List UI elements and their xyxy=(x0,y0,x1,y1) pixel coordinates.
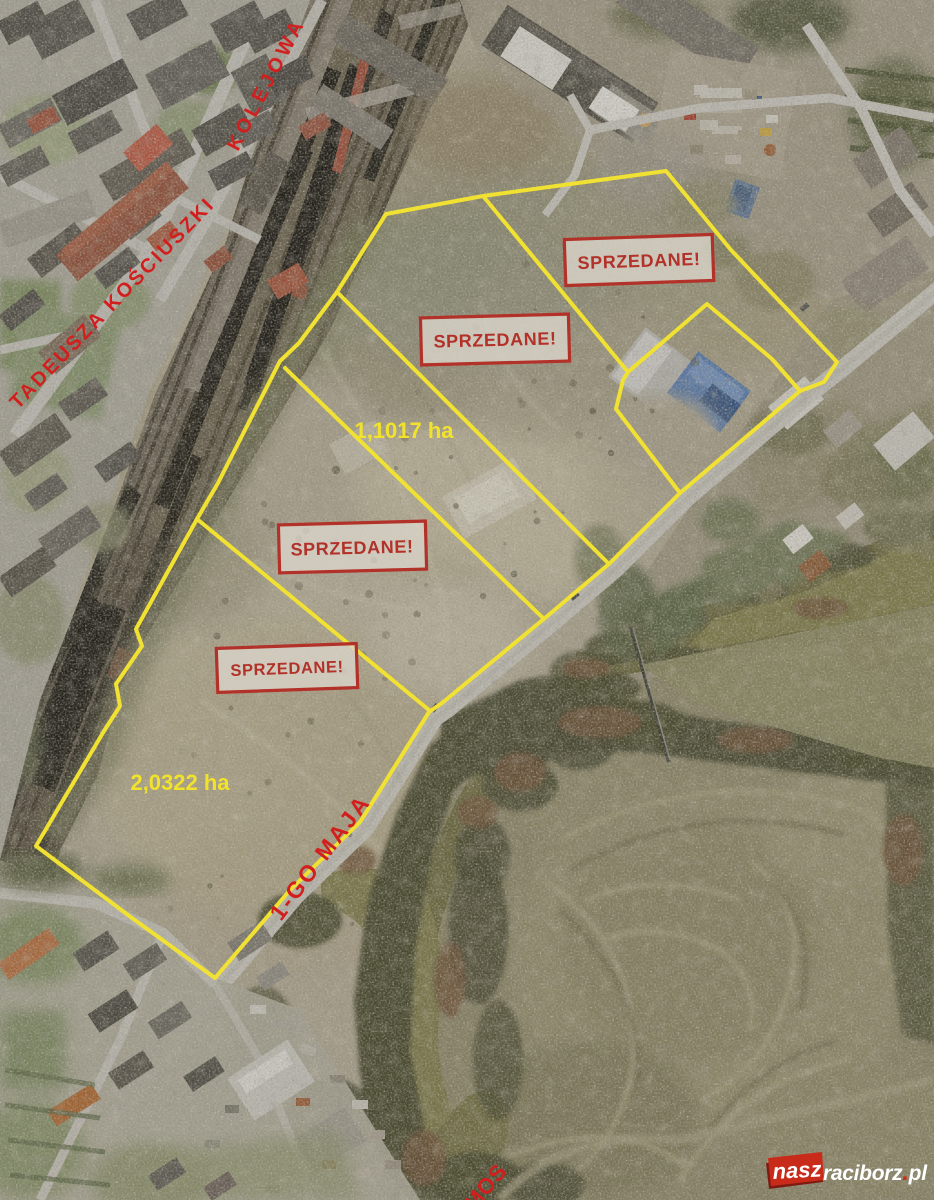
svg-text:1,1017 ha: 1,1017 ha xyxy=(354,418,454,443)
svg-text:raciborz.pl: raciborz.pl xyxy=(823,1159,928,1186)
svg-text:SPRZEDANE!: SPRZEDANE! xyxy=(290,536,413,559)
svg-text:2,0322 ha: 2,0322 ha xyxy=(130,770,230,795)
svg-text:SPRZEDANE!: SPRZEDANE! xyxy=(433,328,556,351)
svg-text:nasz: nasz xyxy=(772,1156,822,1184)
